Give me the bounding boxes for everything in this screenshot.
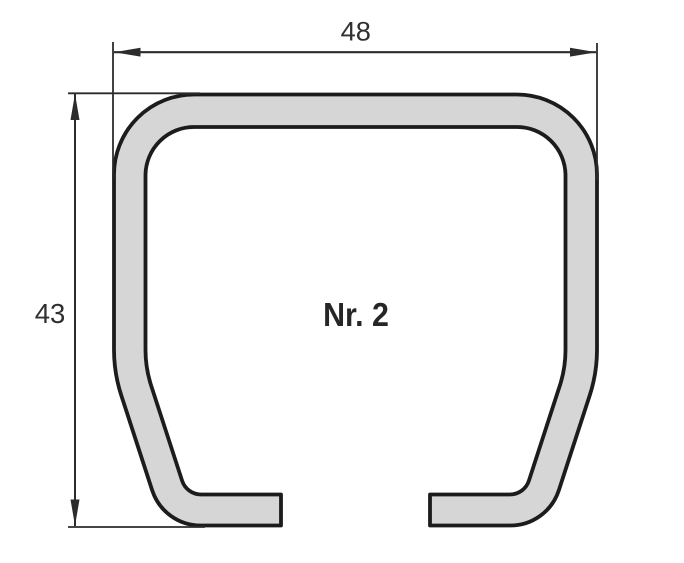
svg-text:43: 43 xyxy=(35,298,66,329)
svg-text:48: 48 xyxy=(341,15,371,46)
svg-text:Nr. 2: Nr. 2 xyxy=(323,296,389,333)
